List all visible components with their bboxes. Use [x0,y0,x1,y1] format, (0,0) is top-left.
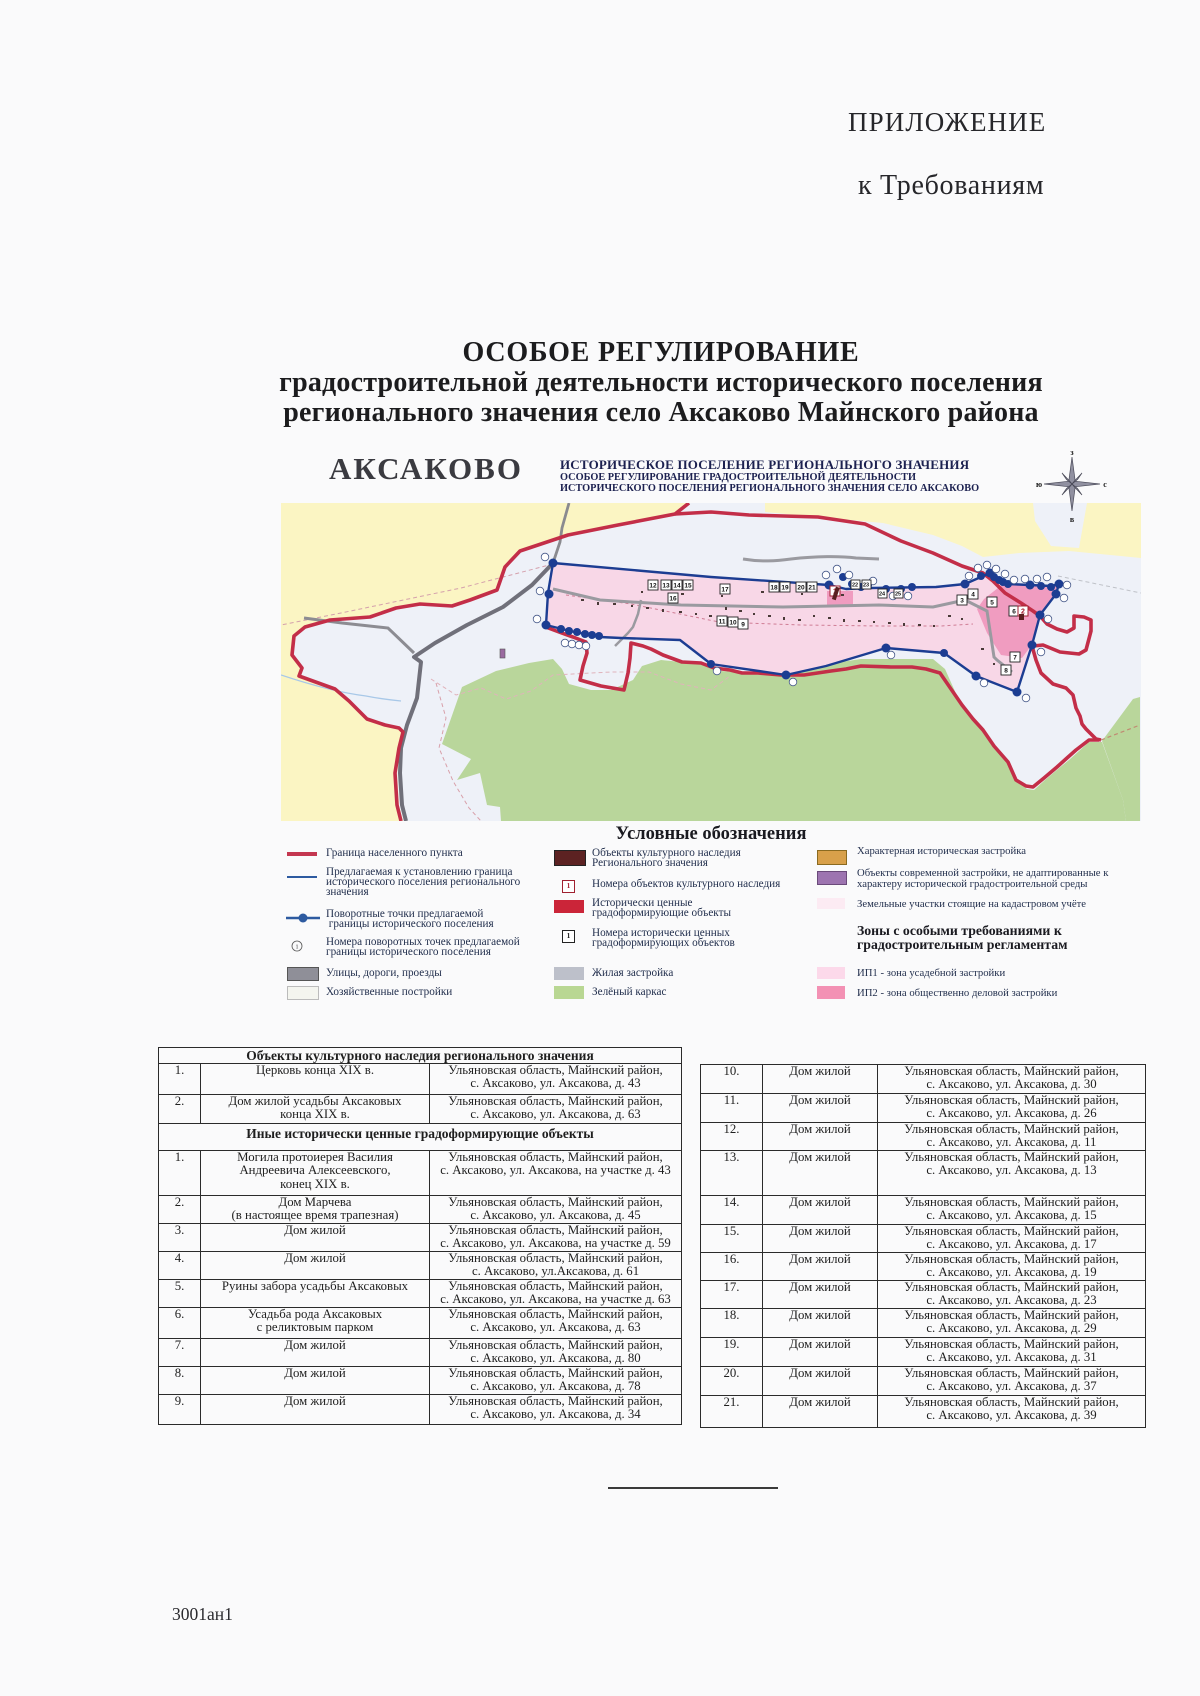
svg-text:с: с [1103,480,1107,489]
svg-text:8: 8 [1004,668,1008,675]
svg-text:25: 25 [895,592,901,598]
svg-text:11: 11 [719,619,726,626]
svg-text:17: 17 [721,587,729,594]
svg-text:23: 23 [863,583,869,589]
svg-text:7: 7 [1013,655,1017,662]
svg-text:3: 3 [960,598,964,605]
svg-text:10: 10 [729,620,737,627]
svg-text:15: 15 [684,583,692,590]
svg-text:21: 21 [808,585,816,592]
svg-text:ю: ю [1036,480,1042,489]
svg-text:5: 5 [990,600,994,607]
svg-text:14: 14 [673,583,681,590]
svg-text:1: 1 [296,945,299,951]
svg-text:12: 12 [649,583,657,590]
svg-text:в: в [1070,515,1075,524]
svg-text:з: з [1070,448,1074,457]
svg-text:13: 13 [662,583,670,590]
svg-text:24: 24 [879,592,886,598]
svg-text:20: 20 [797,585,805,592]
svg-text:22: 22 [852,583,858,589]
svg-text:9: 9 [741,622,745,629]
svg-text:4: 4 [971,592,975,599]
svg-text:16: 16 [669,596,677,603]
svg-text:18: 18 [770,585,778,592]
svg-text:6: 6 [1012,609,1016,616]
svg-text:19: 19 [781,585,789,592]
